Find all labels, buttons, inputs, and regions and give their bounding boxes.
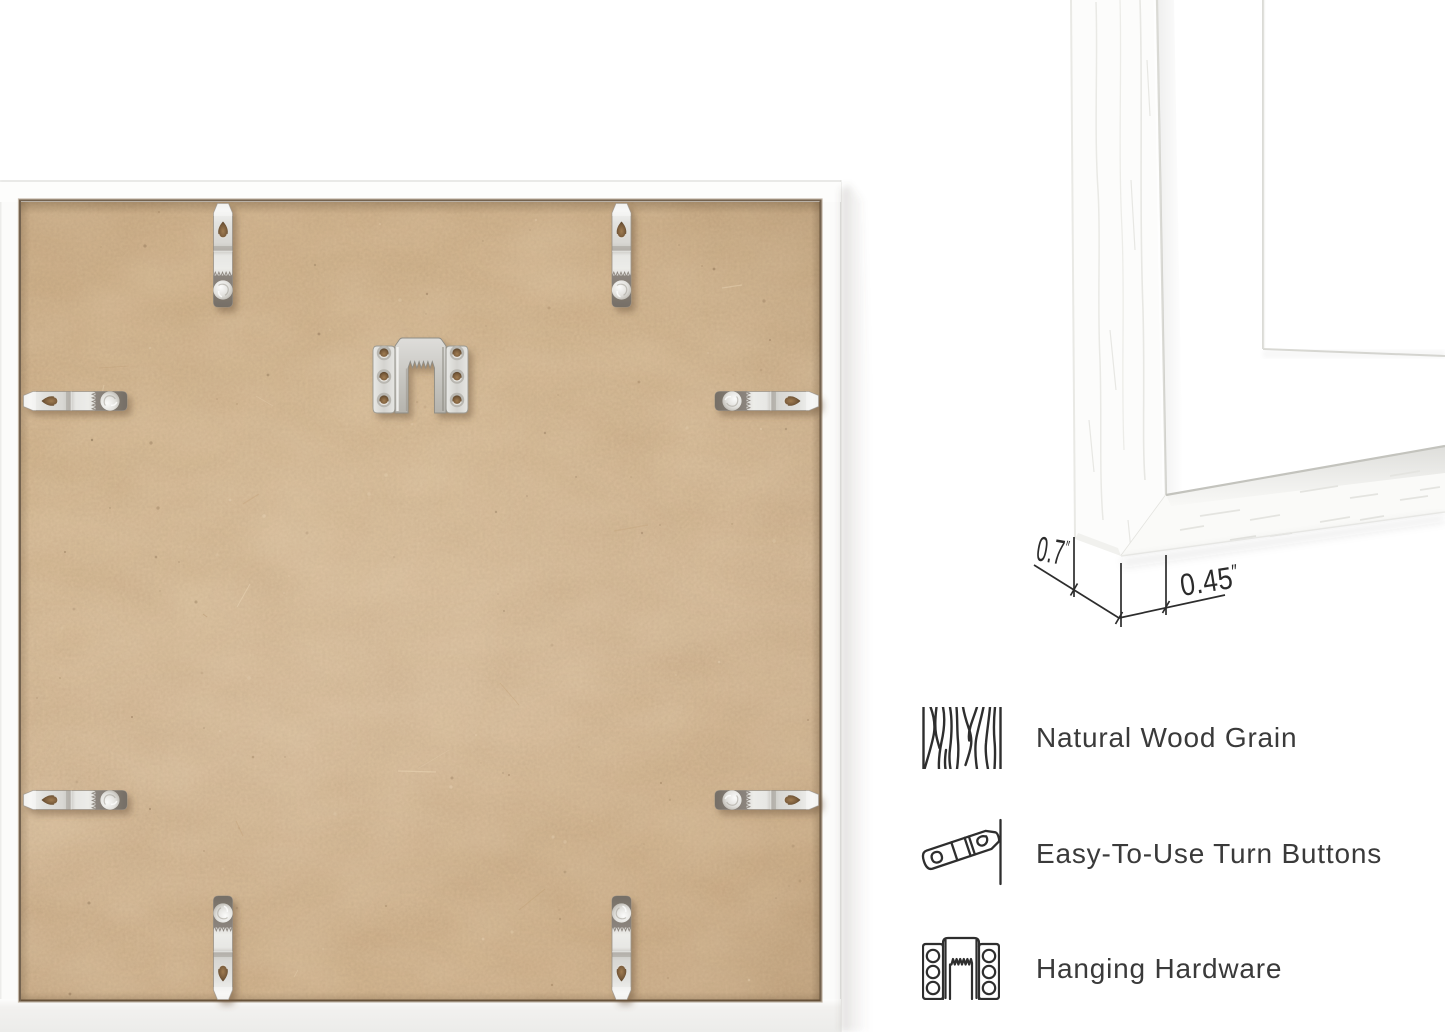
svg-text:0.7″: 0.7″ [1034, 528, 1072, 573]
svg-text:0.45″: 0.45″ [1178, 560, 1242, 604]
